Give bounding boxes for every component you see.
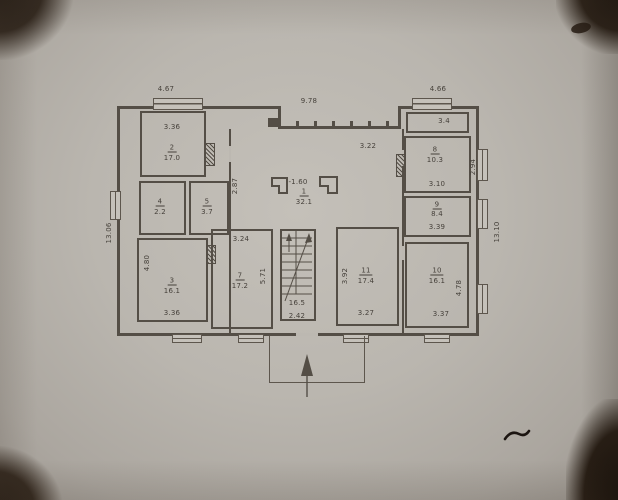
dim-top-center: 9.78 [301, 97, 317, 105]
room11-dim-bottom: 3.27 [358, 309, 374, 317]
room10-dim-right: 4.78 [455, 280, 463, 296]
room10-number: 10 [430, 267, 443, 276]
room7-dim-top: 3.24 [233, 235, 249, 243]
room8-area: 10.3 [427, 156, 443, 164]
room9-area: 8.4 [431, 210, 443, 218]
room7-area: 17.2 [232, 282, 248, 290]
room7-number: 7 [236, 272, 245, 281]
dim-top-left: 4.67 [158, 85, 174, 93]
room8-number: 8 [431, 146, 440, 155]
room2-dim-top: 3.36 [164, 123, 180, 131]
pen-mark [505, 431, 529, 439]
room3-dim-bottom: 3.36 [164, 309, 180, 317]
hall-level-mark: -1.60 [288, 178, 307, 186]
scanned-floor-plan: 4.67 9.78 4.66 13.06 13.10 3.22 -1.60 1 … [0, 0, 618, 500]
room8-dim-right: 2.94 [469, 159, 477, 175]
stairwell-area: 16.5 [289, 299, 305, 307]
room2-area: 17.0 [164, 154, 180, 162]
stairwell-dim-bottom: 2.42 [289, 312, 305, 320]
dim-top-right: 4.66 [430, 85, 446, 93]
room3-area: 16.1 [164, 287, 180, 295]
room4-area: 2.2 [154, 208, 166, 216]
hall-number: 1 [300, 188, 309, 197]
room11-dim-left: 3.92 [341, 268, 349, 284]
room11-area: 17.4 [358, 277, 374, 285]
room2-number: 2 [168, 144, 177, 153]
room11-number: 11 [359, 267, 372, 276]
room5-area: 3.7 [201, 208, 213, 216]
room7-dim-right: 5.71 [259, 268, 267, 284]
hall-area: 32.1 [296, 198, 312, 206]
room9-number: 9 [433, 201, 442, 210]
dim-right-side: 13.10 [493, 221, 501, 242]
room10-area: 16.1 [429, 277, 445, 285]
plan-detail-layer [0, 0, 618, 500]
room10-dim-bottom: 3.37 [433, 310, 449, 318]
hall-column-left [272, 178, 287, 193]
entrance-arrow-icon [301, 354, 313, 397]
hall-dim-left: 2.87 [231, 178, 239, 194]
room5-number: 5 [203, 198, 212, 207]
hall-dim-top: 3.22 [360, 142, 376, 150]
stair-direction-line [285, 233, 312, 301]
dim-left-side: 13.06 [105, 222, 113, 243]
room3-number: 3 [168, 277, 177, 286]
room4-number: 4 [156, 198, 165, 207]
room3-dim-left: 4.80 [143, 255, 151, 271]
room-top-right-area: 3.4 [438, 117, 450, 125]
room8-dim-bottom: 3.10 [429, 180, 445, 188]
hall-column-right [320, 177, 337, 193]
room9-dim-bottom: 3.39 [429, 223, 445, 231]
